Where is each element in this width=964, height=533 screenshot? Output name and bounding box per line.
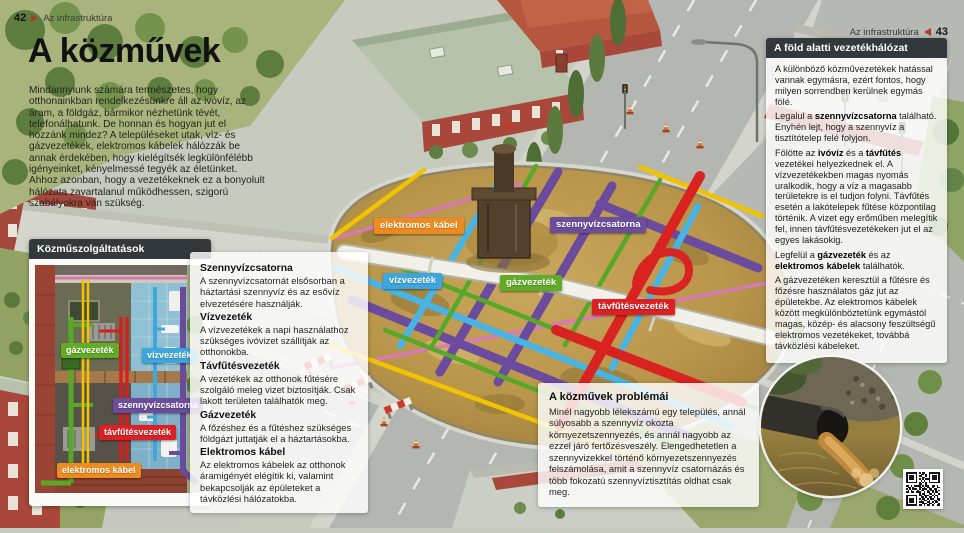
sewage-outfall-photo xyxy=(761,357,900,496)
underground-paragraph: A különböző közművezetékek hatással vann… xyxy=(775,64,938,107)
page-header-right: Az infrastruktúra 43 xyxy=(850,26,948,38)
intro-paragraph: Mindannyiunk számára természetes, hogy o… xyxy=(29,85,266,209)
arrow-left-icon xyxy=(924,28,931,36)
desc-item: Szennyvízcsatorna A szennyvízcsatornát e… xyxy=(200,263,358,309)
section-title-right: Az infrastruktúra xyxy=(850,27,919,38)
house-label-heating: távfűtésvezeték xyxy=(99,425,176,440)
page-title: A közművek xyxy=(28,32,220,71)
pit-label-electric: elektromos kábel xyxy=(374,218,464,234)
underground-paragraph: A gázvezetéken keresztül a fűtésre és fő… xyxy=(775,275,938,351)
page-header-left: 42 Az infrastruktúra xyxy=(14,12,112,24)
pit-label-gas: gázvezeték xyxy=(500,275,562,291)
desc-heading: Szennyvízcsatorna xyxy=(200,263,358,274)
pit-label-heating: távfűtésvezeték xyxy=(592,299,675,315)
sewage-outfall-svg xyxy=(761,357,900,496)
desc-body: A vezetékek az otthonok fűtésére szolgál… xyxy=(200,373,358,407)
desc-heading: Gázvezeték xyxy=(200,410,358,421)
house-cutaway-svg xyxy=(35,265,203,493)
section-title-left: Az infrastruktúra xyxy=(43,13,112,24)
problems-title: A közművek problémái xyxy=(549,391,748,403)
fire-hydrant xyxy=(505,124,512,131)
desc-item: Vízvezeték A vízvezetékek a napi használ… xyxy=(200,312,358,358)
underground-network-panel: A föld alatti vezetékhálózat A különböző… xyxy=(766,38,947,363)
page-number-left: 42 xyxy=(14,12,26,24)
services-box-title: Közműszolgáltatások xyxy=(29,239,211,259)
desc-heading: Vízvezeték xyxy=(200,312,358,323)
underground-paragraph: Legalul a szennyvízcsatorna található. E… xyxy=(775,111,938,144)
house-label-electric: elektromos kábel xyxy=(57,463,141,478)
problems-body: Minél nagyobb lélekszámú egy település, … xyxy=(549,406,748,498)
page-number-right: 43 xyxy=(936,26,948,38)
problems-panel: A közművek problémái Minél nagyobb lélek… xyxy=(538,383,759,507)
desc-body: Az elektromos kábelek az otthonok áramig… xyxy=(200,459,358,504)
arrow-right-icon xyxy=(31,14,38,22)
phone-booth xyxy=(556,54,567,72)
desc-item: Elektromos kábel Az elektromos kábelek a… xyxy=(200,447,358,504)
desc-body: A főzéshez és a fűtéshez szükséges földg… xyxy=(200,422,358,445)
services-box: Közműszolgáltatások xyxy=(29,239,211,506)
house-label-gas: gázvezeték xyxy=(61,343,119,358)
underground-paragraph: Fölötte az ivóvíz és a távfűtés vezetéke… xyxy=(775,148,938,246)
desc-heading: Elektromos kábel xyxy=(200,447,358,458)
pit-label-sewage: szennyvízcsatorna xyxy=(550,217,646,233)
pit-label-water: vízvezeték xyxy=(383,273,442,289)
house-label-water: vízvezeték xyxy=(142,348,197,363)
underground-panel-title: A föld alatti vezetékhálózat xyxy=(766,38,947,58)
utility-descriptions-panel: Szennyvízcsatorna A szennyvízcsatornát e… xyxy=(190,252,368,513)
house-cutaway-illustration: gázvezeték vízvezeték szennyvízcsatorna … xyxy=(29,259,211,506)
qr-code-grid xyxy=(906,472,940,506)
desc-body: A szennyvízcsatornát elsősorban a háztar… xyxy=(200,275,358,309)
desc-heading: Távfűtésvezeték xyxy=(200,361,358,372)
desc-item: Távfűtésvezeték A vezetékek az otthonok … xyxy=(200,361,358,407)
desc-item: Gázvezeték A főzéshez és a fűtéshez szük… xyxy=(200,410,358,445)
underground-paragraph: Legfelül a gázvezeték és az elektromos k… xyxy=(775,250,938,272)
desc-body: A vízvezetékek a napi használathoz szüks… xyxy=(200,324,358,358)
qr-code xyxy=(903,469,943,509)
